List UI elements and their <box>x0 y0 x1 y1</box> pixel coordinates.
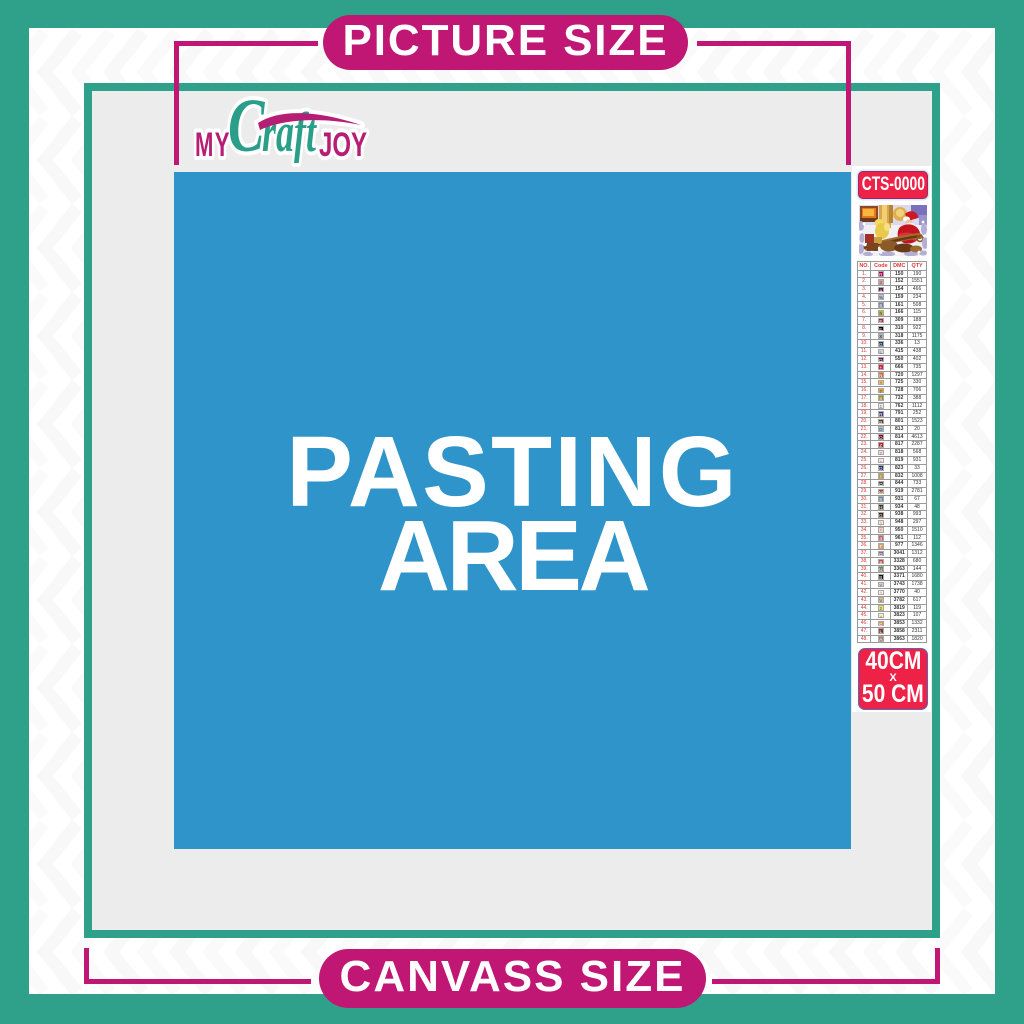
svg-text:MY: MY <box>195 126 231 164</box>
svg-text:raft: raft <box>262 102 317 164</box>
svg-text:JOY: JOY <box>319 126 367 164</box>
